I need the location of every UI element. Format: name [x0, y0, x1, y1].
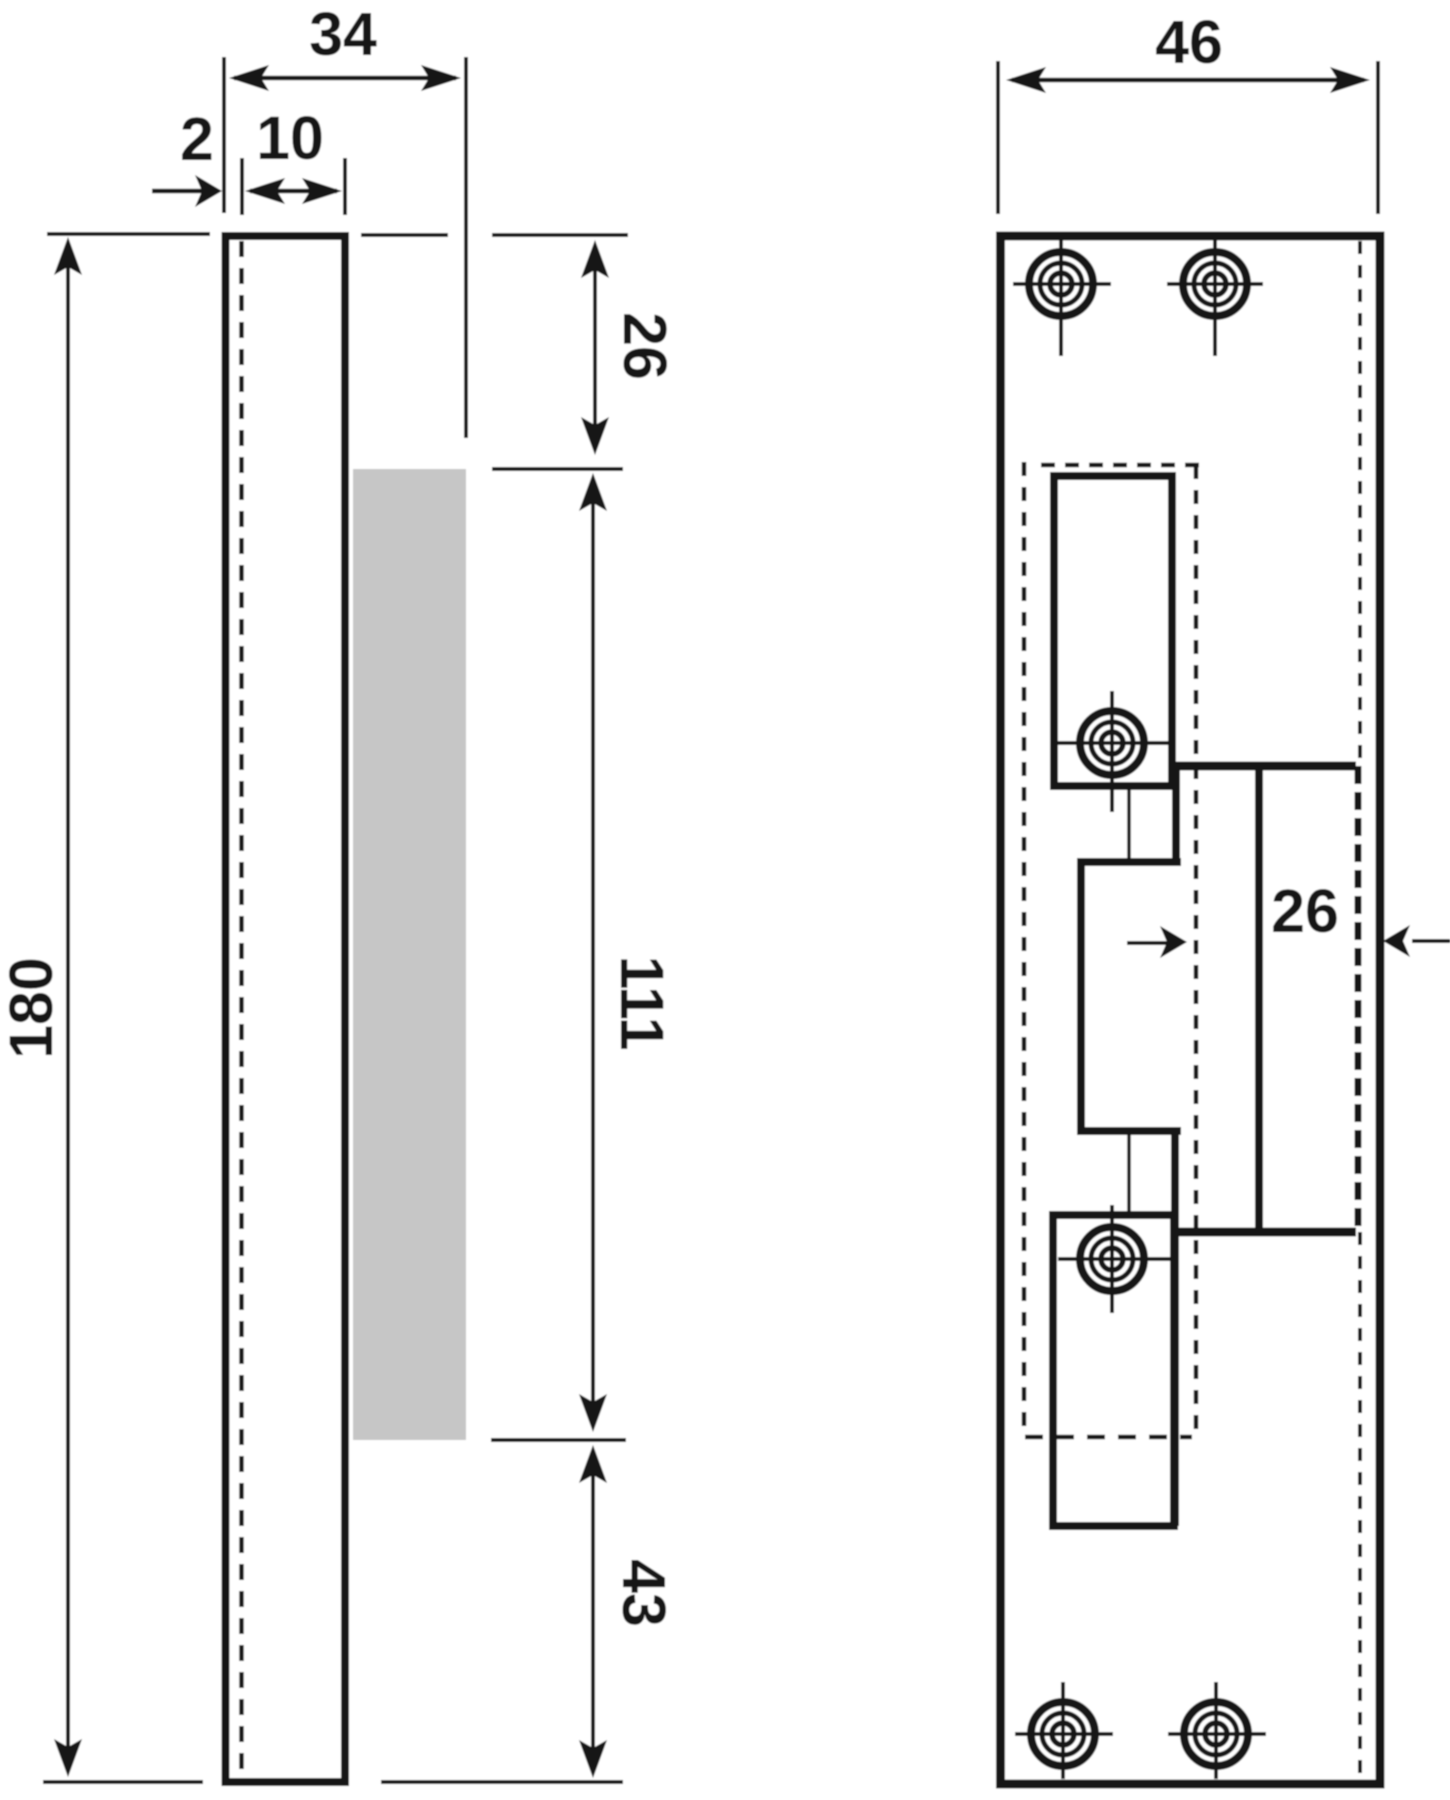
svg-text:180: 180: [0, 957, 65, 1059]
svg-text:2: 2: [180, 105, 214, 173]
svg-text:10: 10: [256, 104, 324, 172]
svg-text:26: 26: [1271, 877, 1339, 945]
svg-text:111: 111: [608, 955, 676, 1050]
svg-text:43: 43: [610, 1559, 678, 1627]
svg-text:34: 34: [309, 0, 377, 68]
svg-text:46: 46: [1155, 8, 1223, 76]
svg-text:26: 26: [611, 312, 679, 380]
